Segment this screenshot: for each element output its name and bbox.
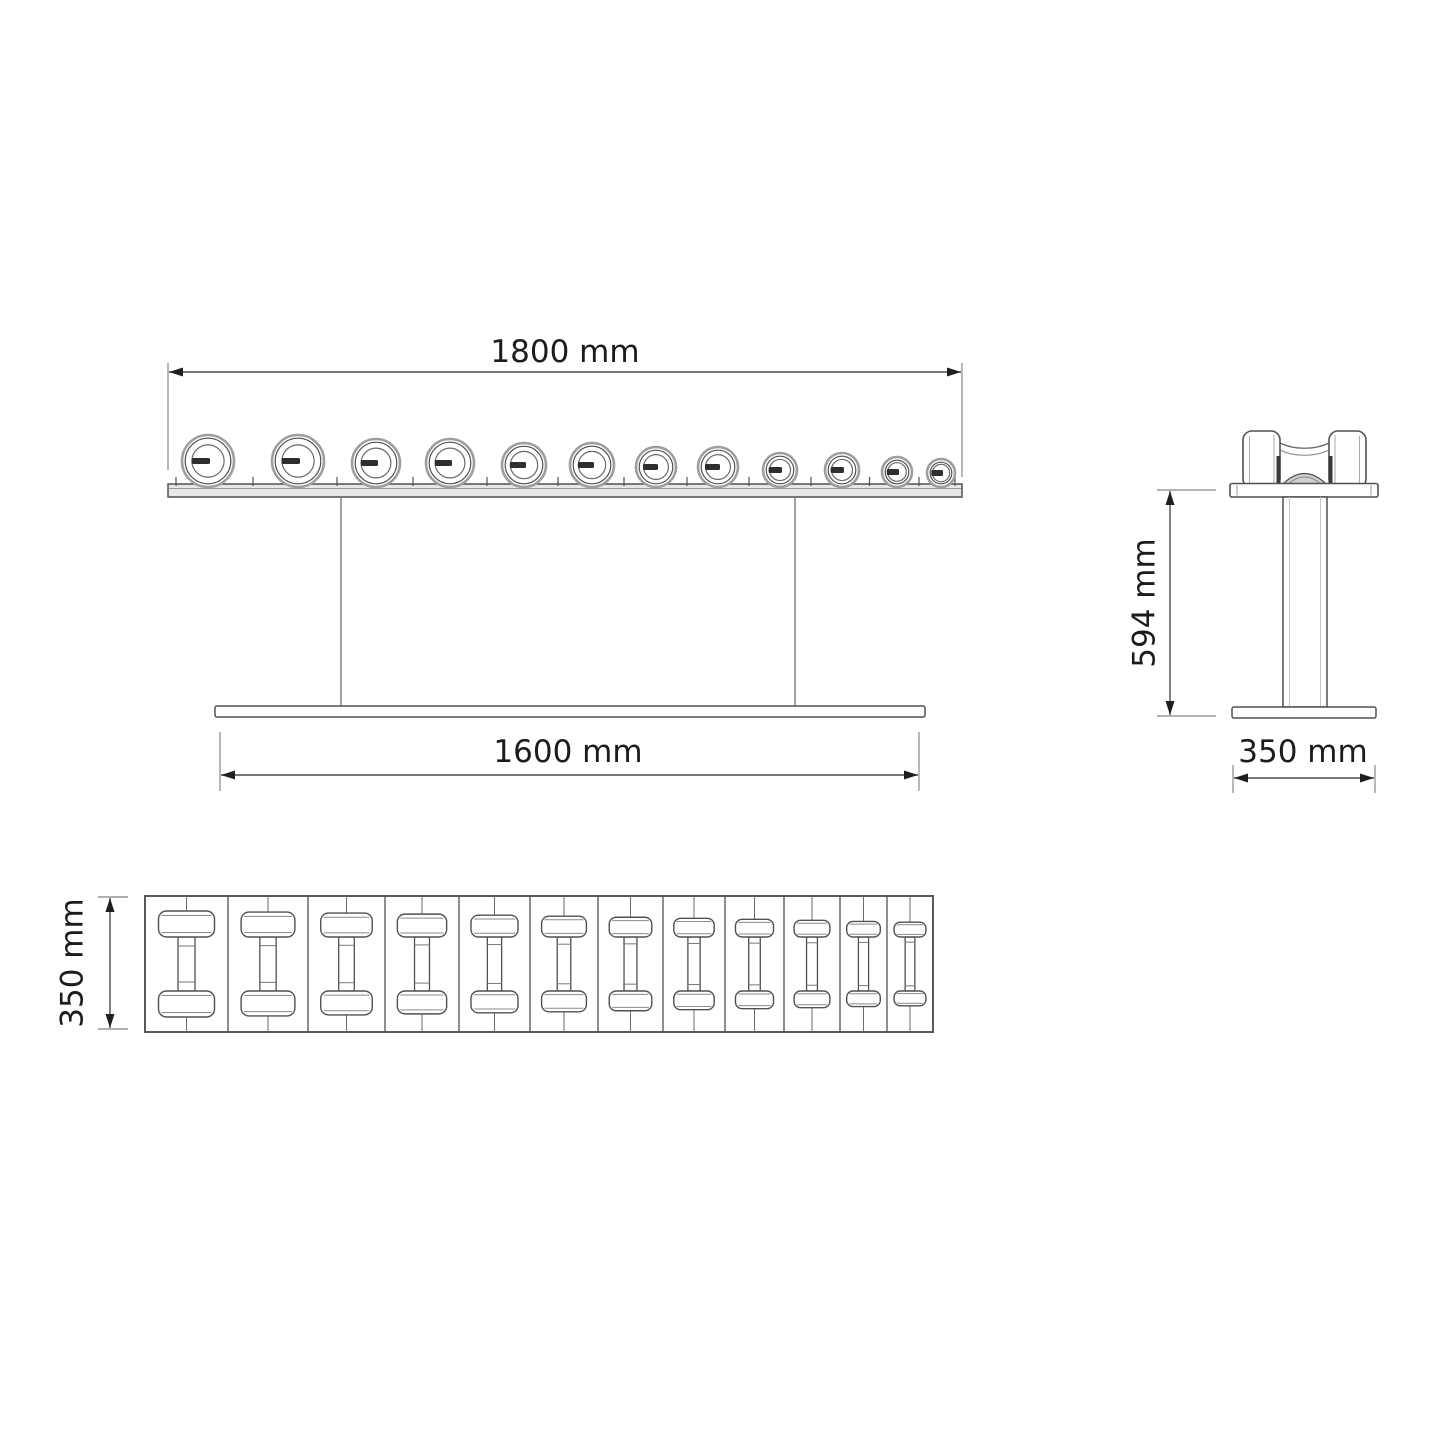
weight-marking [192,458,210,464]
dumbbell-head-top-view [471,915,518,937]
dumbbell-head-top-view [159,911,215,937]
dumbbell-handle-top-view [749,937,761,991]
dumbbell-handle-top-view [624,937,637,991]
collar-dark-right [1329,456,1333,486]
dumbbell-handle-top-view [260,937,276,991]
front-dumbbell [763,453,797,487]
collar-dark-left [1277,456,1281,486]
arrowhead-right [904,771,918,780]
weight-marking [643,464,658,470]
dimension-label-side-depth: 350 mm [1238,734,1367,770]
weight-marking [510,462,526,468]
dimension-base-width: 1600 mm [220,732,919,791]
plan-view: 350 mm [55,896,934,1032]
dumbbell-handle-top-view [487,937,501,991]
front-dumbbell [927,459,955,487]
weight-marking [705,464,720,470]
front-dumbbell [570,443,614,487]
arrowhead-up [1166,491,1175,505]
front-dumbbells [182,435,955,487]
dimension-label-base-width: 1600 mm [493,734,642,770]
dumbbell-head-top-view [471,991,518,1013]
front-dumbbell [352,439,400,487]
dumbbell-handle-top-view [688,937,700,991]
dumbbell-head-top-view [241,912,295,937]
dumbbell-handle-top-view [557,937,571,991]
side-dumbbell [1243,431,1366,488]
front-dumbbell [272,435,324,487]
dimension-side-height: 594 mm [1127,490,1217,716]
arrowhead-left [1234,774,1248,783]
dumbbell-head-top-view [397,991,446,1014]
handle-lower-line [1280,450,1329,455]
arrowhead-left [169,368,183,377]
front-dumbbell [698,447,738,487]
rack-base-front [215,706,925,717]
weight-marking [831,467,844,473]
weight-marking [435,460,452,466]
weight-marking [578,462,594,468]
front-dumbbell [882,457,912,487]
weight-marking [769,467,782,473]
arrowhead-down [1166,701,1175,715]
dimension-plan-depth: 350 mm [55,897,129,1029]
front-dumbbell [502,443,546,487]
dumbbell-handle-top-view [905,937,915,991]
arrowhead-right [1360,774,1374,783]
side-view: 594 mm 350 mm [1127,431,1379,793]
dimension-label-plan-depth: 350 mm [55,898,91,1027]
dumbbell-head-top-view [321,913,373,937]
dumbbell-rack-technical-drawing: 1800 mm 1600 mm [0,0,1445,1445]
dumbbell-handle-top-view [858,937,868,991]
weight-marking [931,470,943,476]
front-dumbbell [636,447,676,487]
handle-top-line [1280,443,1329,448]
dumbbell-head-top-view [321,991,373,1015]
dumbbell-head-top-view [159,991,215,1017]
front-dumbbell [182,435,234,487]
front-dumbbell [426,439,474,487]
weight-marking [887,469,899,475]
dumbbell-handle-top-view [178,937,195,991]
dimension-side-depth: 350 mm [1233,734,1375,793]
weight-marking [282,458,300,464]
dimension-label-side-height: 594 mm [1127,538,1163,667]
arrowhead-right [947,368,961,377]
arrowhead-up [106,898,115,912]
rack-base-side [1232,707,1376,718]
dumbbell-handle-top-view [807,937,818,991]
arrowhead-left [221,771,235,780]
dumbbell-head-top-view [241,991,295,1016]
rack-shelf-side [1230,484,1378,498]
weight-marking [361,460,378,466]
front-view: 1800 mm 1600 mm [168,334,962,791]
front-dumbbell [825,453,859,487]
dumbbell-head-top-view [397,914,446,937]
arrowhead-down [106,1014,115,1028]
dimension-label-front-width: 1800 mm [490,334,639,370]
